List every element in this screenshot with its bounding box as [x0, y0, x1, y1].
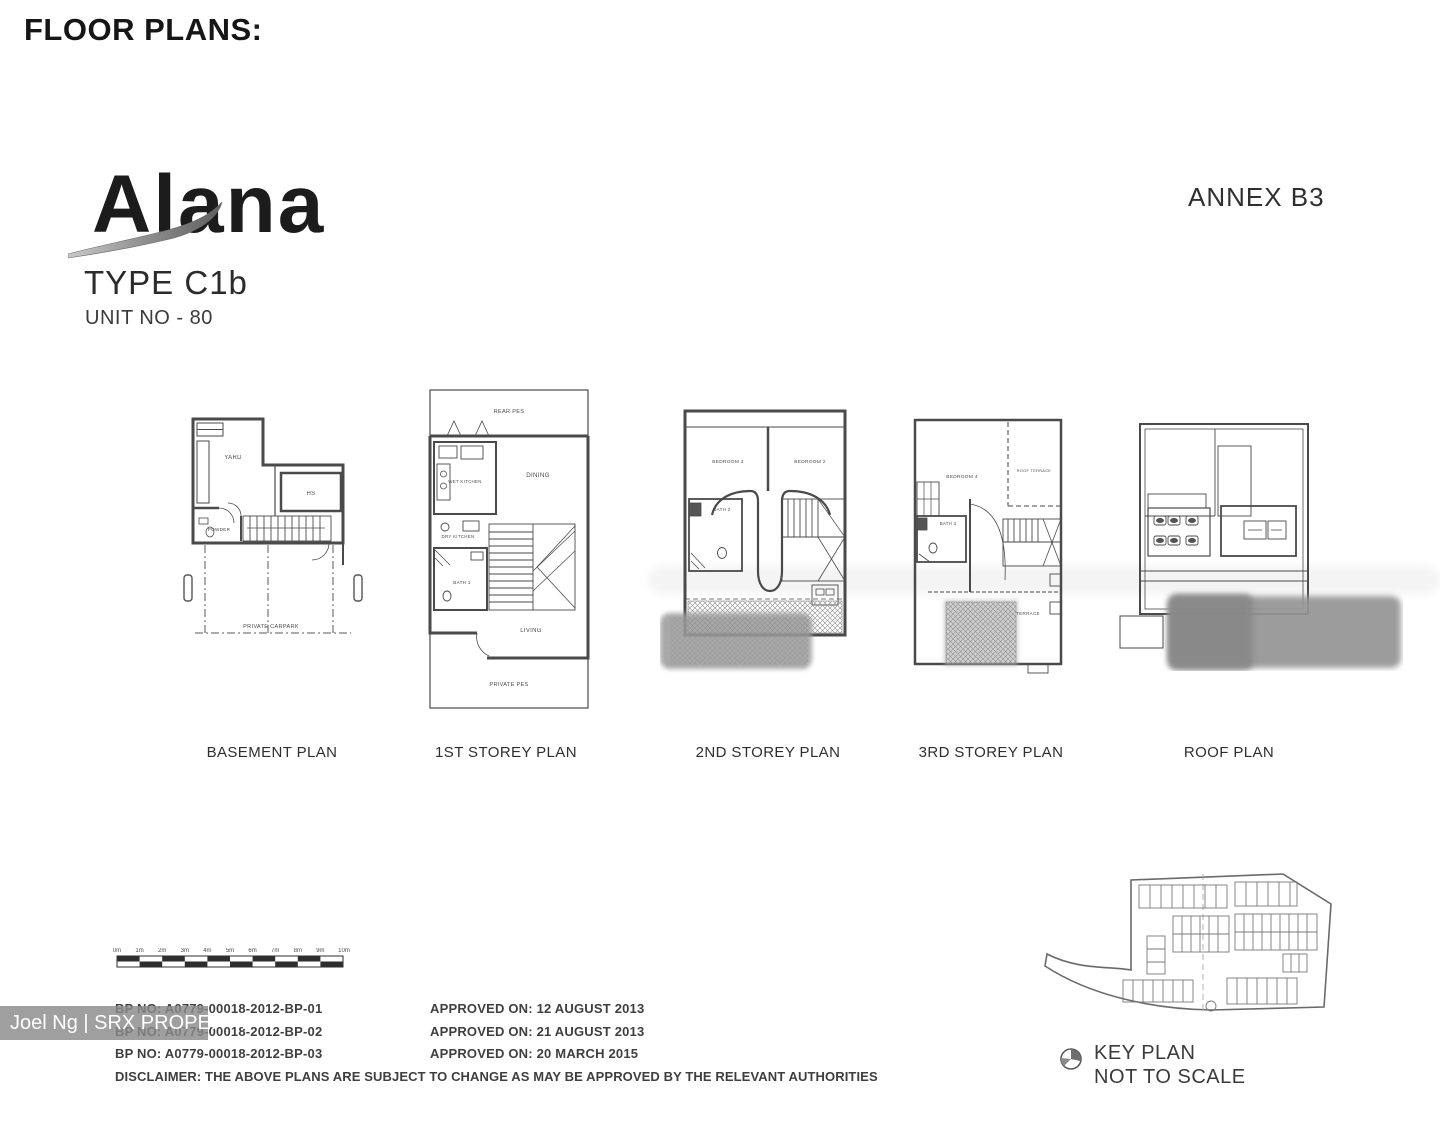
bp-number-3: BP NO: A0779-00018-2012-BP-03: [115, 1046, 322, 1061]
room-label-roof-terrace: ROOF TERRACE: [1017, 468, 1052, 473]
unit-type-label: TYPE C1b: [84, 264, 248, 302]
room-label-living: LIVING: [520, 628, 542, 634]
unit-blocks: [1123, 882, 1317, 1011]
gray-blur-patch-small: [1168, 594, 1253, 670]
scale-tick: 10m: [338, 948, 350, 954]
key-plan-label: KEY PLAN: [1094, 1042, 1195, 1065]
brand-logo: Alana: [82, 158, 482, 268]
stairs: [1003, 519, 1061, 566]
stairs: [782, 499, 845, 581]
roof-terrace-boundary: [1008, 422, 1061, 506]
room-label-carpark: PRIVATE CARPARK: [243, 624, 299, 630]
room-label-hs: HS: [307, 491, 316, 497]
scale-tick: 9m: [316, 948, 324, 954]
room-label-wet-kitchen: WET KITCHEN: [448, 479, 481, 484]
approval-date-1: APPROVED ON: 12 AUGUST 2013: [430, 1001, 644, 1016]
gray-blur-hatch: [670, 617, 808, 665]
floor-plan-sheet: FLOOR PLANS: ANNEX B3 Alana TYPE C1b UNI…: [0, 0, 1440, 1142]
scale-tick: 2m: [158, 948, 166, 954]
disclaimer-text: DISCLAIMER: THE ABOVE PLANS ARE SUBJECT …: [115, 1069, 878, 1084]
room-label-bedroom4: BEDROOM 4: [946, 474, 978, 480]
scale-tick: 6m: [248, 948, 256, 954]
site-outline: [1045, 874, 1331, 1010]
third-storey-plan-drawing: BEDROOM 4 ROOF TERRACE BATH 3 TERRACE: [908, 414, 1068, 682]
stairs: [243, 516, 331, 541]
stairs: [489, 524, 575, 610]
room-label-dining: DINING: [526, 472, 549, 479]
caption-basement: BASEMENT PLAN: [162, 744, 382, 761]
room-label-bath3: BATH 3: [940, 521, 957, 526]
second-storey-plan-drawing: BEDROOM 3 BEDROOM 2 BATH 2: [660, 403, 855, 673]
room-label-bath2: BATH 2: [713, 507, 730, 512]
watermark: Joel Ng | SRX PROPERTY: [0, 1006, 208, 1040]
approval-date-2: APPROVED ON: 21 AUGUST 2013: [430, 1024, 644, 1039]
scale-tick: 0m: [113, 948, 121, 954]
scale-tick: 8m: [294, 948, 302, 954]
wet-kitchen-room: [434, 442, 496, 514]
unit-number-label: UNIT NO - 80: [85, 307, 213, 330]
basement-plan-drawing: YARD HS POWDER PRIVATE CARPARK: [183, 413, 363, 668]
room-label-powder: POWDER: [208, 527, 231, 532]
scale-tick: 7m: [271, 948, 279, 954]
scale-tick: 1m: [135, 948, 143, 954]
caption-storey1: 1ST STOREY PLAN: [396, 744, 616, 761]
scale-tick: 5m: [226, 948, 234, 954]
scale-tick: 4m: [203, 948, 211, 954]
page-title: FLOOR PLANS:: [24, 12, 263, 48]
annex-label: ANNEX B3: [1188, 182, 1325, 213]
carpark-boundary: [195, 545, 351, 633]
scale-tick: 3m: [181, 948, 189, 954]
room-label-dry-kitchen: DRY KITCHEN: [442, 534, 475, 539]
key-plan-icon: [1058, 1046, 1084, 1072]
key-plan-note: NOT TO SCALE: [1094, 1066, 1246, 1089]
caption-storey2: 2ND STOREY PLAN: [658, 744, 878, 761]
vent-bank: [1148, 508, 1210, 556]
terrace-hatch: [946, 602, 1016, 664]
room-label-yard: YARD: [224, 455, 242, 461]
vent-pairs: [1154, 516, 1198, 545]
approval-date-3: APPROVED ON: 20 MARCH 2015: [430, 1046, 638, 1061]
first-storey-plan-drawing: REAR PES WET KITCHEN DRY KITCHEN BATH 1 …: [425, 386, 593, 714]
key-plan-drawing: [1043, 858, 1408, 1013]
roof-plan-drawing: [1118, 416, 1403, 671]
logo-swoosh-icon: [68, 202, 228, 262]
room-label-bedroom2: BEDROOM 2: [794, 459, 826, 465]
equipment-box: [1221, 506, 1296, 556]
room-label-terrace: TERRACE: [1016, 611, 1040, 616]
room-label-rear-pes: REAR PES: [494, 409, 525, 415]
caption-roof: ROOF PLAN: [1119, 744, 1339, 761]
room-label-bath1: BATH 1: [453, 580, 471, 585]
room-label-private-pes: PRIVATE PES: [489, 682, 528, 688]
scale-bar: 0m 1m 2m 3m 4m 5m 6m 7m 8m 9m 10m: [112, 942, 357, 976]
scale-bar-stripes: [117, 956, 343, 967]
caption-storey3: 3RD STOREY PLAN: [881, 744, 1101, 761]
room-label-bedroom3: BEDROOM 3: [712, 459, 744, 465]
